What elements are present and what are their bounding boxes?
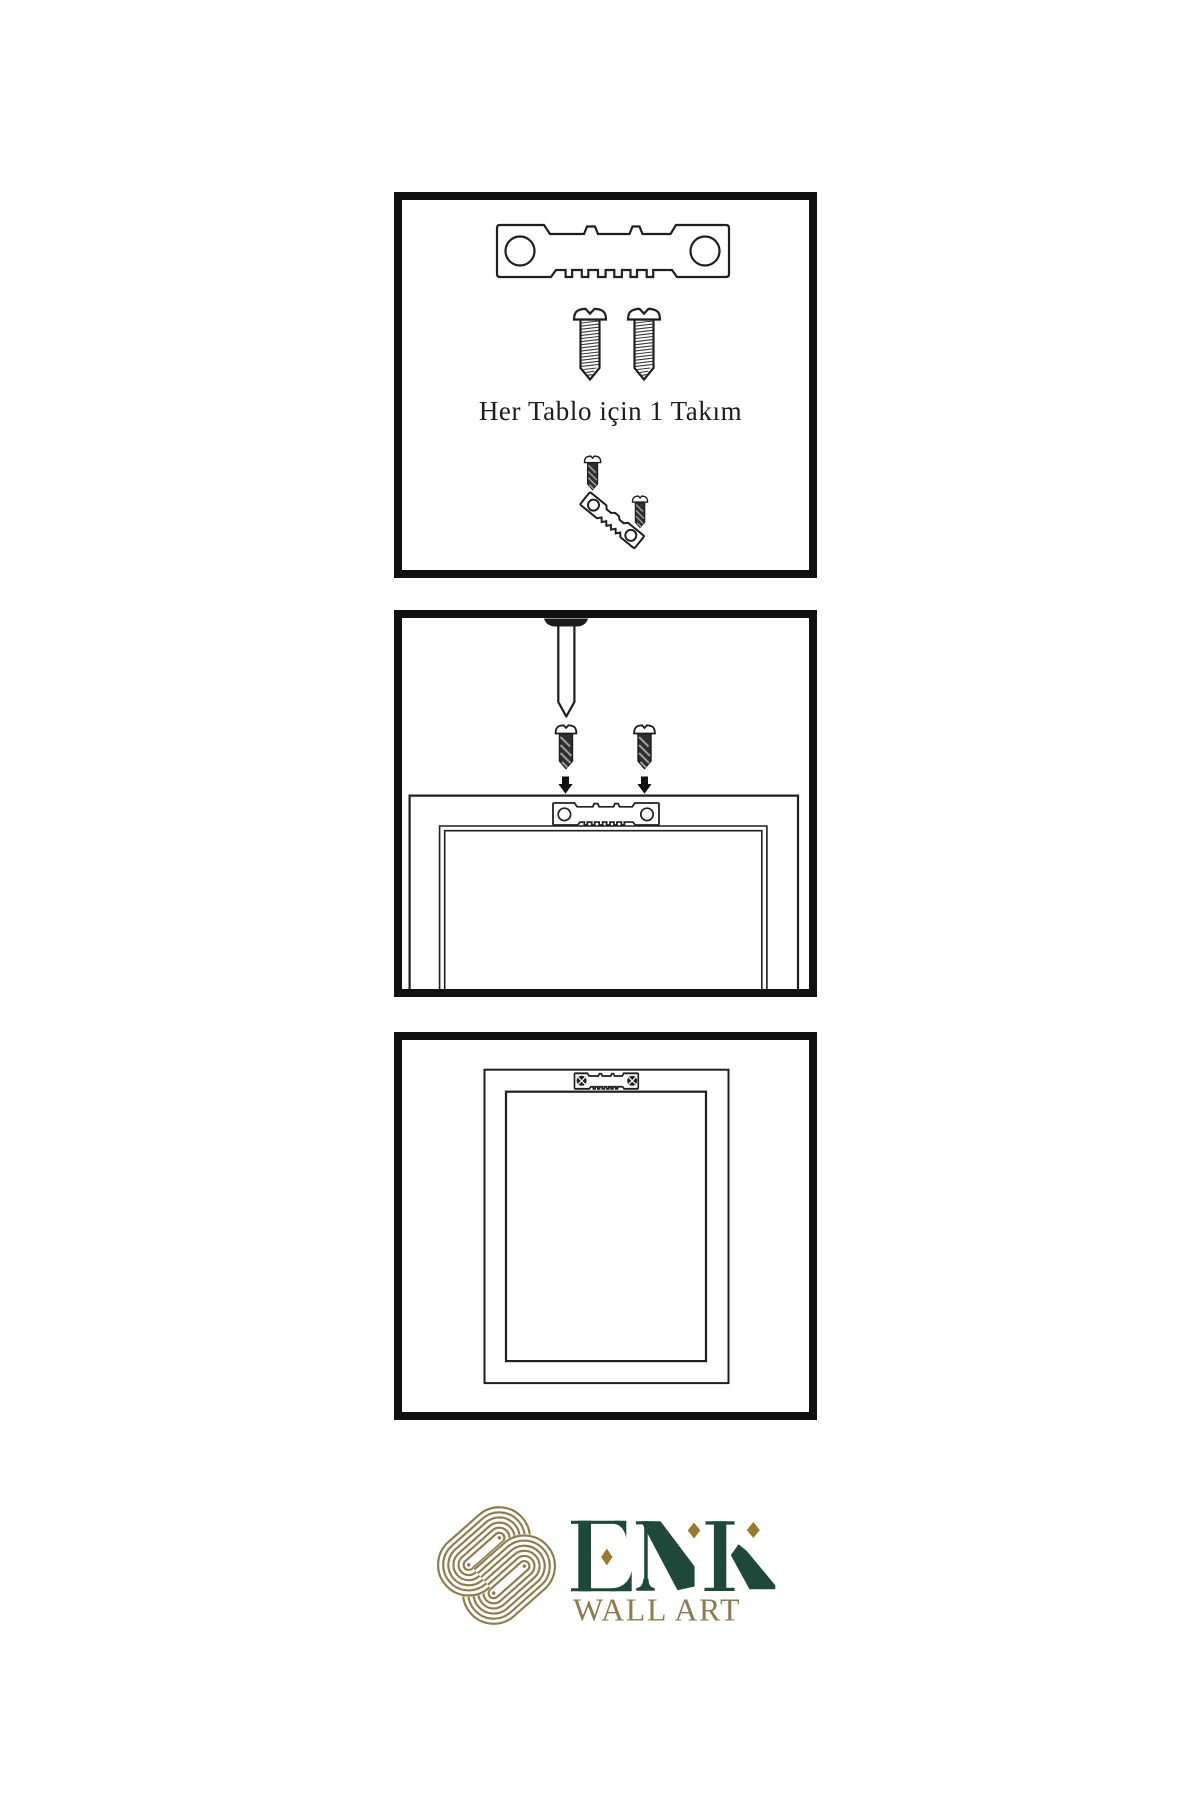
- svg-text:WALL ART: WALL ART: [573, 1592, 741, 1628]
- svg-text:Her Tablo için 1 Takım: Her Tablo için 1 Takım: [479, 396, 742, 426]
